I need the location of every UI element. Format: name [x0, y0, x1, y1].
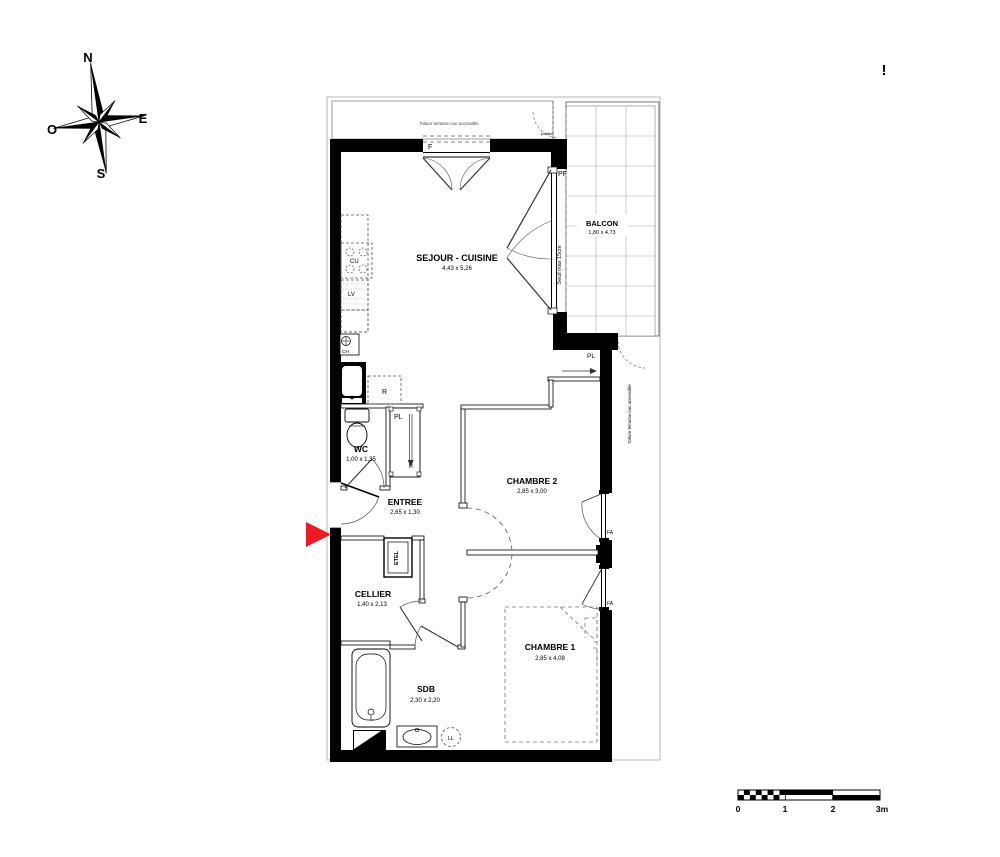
scale-tick-3m: 3m — [876, 804, 889, 814]
scale-tick-2: 2 — [831, 804, 836, 814]
wall-top-left — [330, 139, 423, 152]
window-fa-ch1-label: FA — [607, 601, 614, 607]
washbasin — [397, 726, 437, 747]
partition-closet-sejour — [548, 377, 600, 381]
partition-cellier-top-a — [341, 536, 384, 540]
scale-tick-0: 0 — [736, 804, 741, 814]
closet-sejour-label: PL — [587, 353, 595, 360]
bathroom-fixtures: LL — [352, 649, 461, 752]
compass-rose: N E S O — [45, 50, 152, 181]
terrace-strip: Toiture terrasse non accessible portillo… — [332, 101, 559, 139]
room-dims-wc: 1,00 x 1,35 — [346, 457, 376, 463]
partition-sdb-door-a — [390, 645, 415, 649]
room-label-cellier: CELLIER — [355, 589, 391, 599]
partition-hall-ch2 — [461, 407, 465, 505]
room-dims-balcon: 1,80 x 4,73 — [588, 230, 615, 236]
pf-leaf-bottom — [507, 258, 551, 310]
dishwasher-label: LV — [348, 292, 355, 298]
pf-leaf-top — [507, 170, 551, 248]
etel-box: ETEL — [384, 538, 412, 577]
room-label-entree: ENTREE — [388, 497, 423, 507]
wc-door-arc — [372, 459, 384, 488]
scale-tick-1: 1 — [783, 804, 788, 814]
wall-left-upper — [330, 139, 341, 482]
wc-fixtures — [345, 409, 369, 447]
wall-right-upper — [600, 340, 612, 493]
threshold-label: Seuil max 15cm — [557, 245, 563, 285]
room-dims-chambre2: 2,85 x 3,00 — [517, 489, 547, 495]
room-dims-entree: 2,65 x 1,30 — [390, 510, 420, 516]
window-fa-ch2-label: FA — [607, 530, 614, 536]
cellier-door-leaf — [400, 607, 422, 641]
room-dims-cellier: 1,40 x 2,13 — [357, 602, 387, 608]
closet-entree: PL — [389, 407, 421, 477]
sdb-door-leaf — [421, 626, 458, 647]
closet-entree-label: PL — [394, 414, 403, 421]
kitchen-unit — [341, 310, 368, 332]
bed-outline — [505, 607, 597, 742]
wc-door-leaf — [345, 459, 372, 488]
partition-cellier-right — [420, 540, 424, 601]
partition-ch1-ch2 — [467, 550, 598, 555]
balcony-gate-swing-arc — [618, 341, 645, 368]
terrace-side-label: Toiture terrasse non accessible — [627, 384, 632, 444]
wall-left-lower — [330, 528, 341, 762]
room-label-sdb: SDB — [417, 684, 435, 694]
window-f: F — [423, 136, 490, 190]
window-f-label: F — [428, 144, 432, 151]
cooktop-label: CU — [350, 259, 359, 265]
window-pf: PF Seuil max 15cm — [507, 167, 567, 314]
partition-sejour-step — [549, 380, 553, 407]
partition-cellier-top-b — [412, 536, 424, 540]
partition-door-jamb-bottom — [459, 597, 467, 602]
window-pf-label: PF — [558, 171, 567, 178]
sdb-door-arc — [415, 626, 421, 647]
floor-plan-page: N E S O Toiture terrasse non accessible … — [0, 0, 1000, 857]
wall-partition-end-block — [596, 545, 612, 563]
room-label-balcon: BALCON — [586, 219, 618, 228]
washing-machine-label: LL — [448, 736, 454, 742]
compass-west-label: O — [47, 122, 57, 137]
compass-star — [45, 56, 152, 180]
compass-south-label: S — [97, 166, 106, 181]
partition-wc-top — [341, 404, 423, 408]
room-dims-sejour: 4,43 x 5,26 — [442, 266, 472, 272]
partition-hall-ch1 — [461, 602, 465, 647]
compass-north-label: N — [83, 50, 92, 65]
partition-door-jamb-top — [459, 503, 467, 508]
water-heater-label: CH — [342, 349, 349, 355]
washing-machine: LL — [442, 728, 461, 747]
entrance-door-arc — [341, 497, 379, 524]
alert-mark: ! — [882, 62, 887, 79]
wall-right-lower — [600, 610, 612, 750]
window-fa-chambre2: FA — [582, 490, 614, 542]
gate-label: portillon — [541, 132, 554, 136]
etel-label: ETEL — [394, 550, 400, 565]
room-label-wc: WC — [354, 444, 368, 454]
bedroom-furniture — [505, 607, 597, 742]
partition-sejour-south — [461, 405, 551, 409]
wall-pf-corner — [551, 139, 567, 169]
floor-plan-drawing: N E S O Toiture terrasse non accessible … — [0, 0, 1000, 857]
terrace-top-label: Toiture terrasse non accessible — [419, 121, 479, 126]
room-dims-chambre1: 2,85 x 4,08 — [535, 656, 565, 662]
scale-bar: 0 1 2 3m — [736, 790, 889, 814]
kitchen-counter — [341, 215, 368, 332]
room-label-chambre1: CHAMBRE 1 — [525, 642, 576, 652]
sliding-arrow-icon — [590, 368, 597, 374]
room-label-sejour: SEJOUR - CUISINE — [416, 253, 498, 263]
balcony: BALCON 1,80 x 4,73 Toiture terrasse non … — [566, 102, 659, 444]
room-label-chambre2: CHAMBRE 2 — [507, 476, 558, 486]
window-fa-chambre1: FA — [582, 565, 614, 611]
room-dims-sdb: 2,30 x 2,20 — [410, 698, 440, 704]
partition-wc-bottom-b — [380, 486, 390, 490]
closet-sejour: PL — [562, 353, 597, 374]
compass-east-label: E — [139, 111, 148, 126]
partition-sdb-top — [341, 641, 390, 645]
fridge-label: R — [382, 389, 387, 396]
kitchen-sink — [338, 362, 366, 404]
kitchen-fixtures: CU LV CH R — [338, 215, 401, 404]
bathroom-radiator — [353, 730, 386, 752]
toilet-tank — [345, 409, 369, 422]
